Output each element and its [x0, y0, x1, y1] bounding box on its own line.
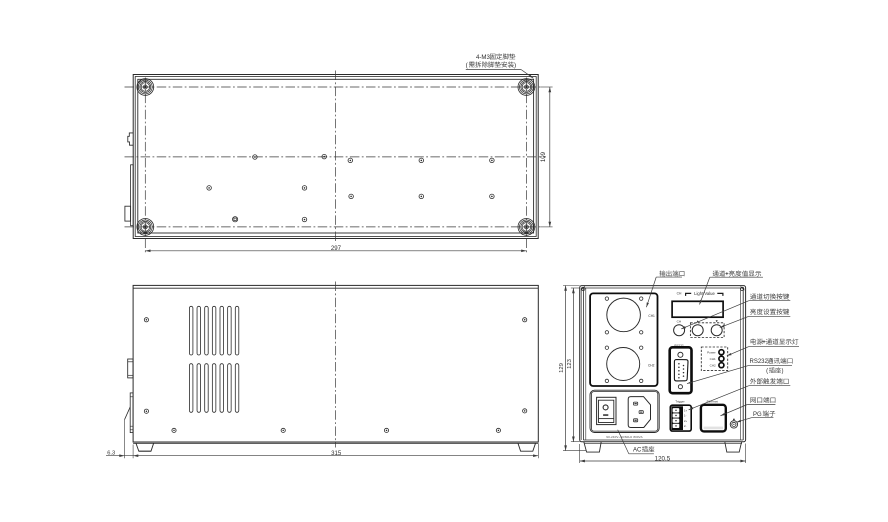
svg-text:AC: AC: [633, 448, 642, 454]
svg-text:CH2: CH2: [710, 363, 716, 367]
svg-text:Light Value: Light Value: [694, 291, 715, 296]
svg-text:PG: PG: [753, 412, 762, 418]
svg-text:120.5: 120.5: [655, 455, 671, 462]
svg-text:CH2: CH2: [648, 363, 655, 367]
svg-text:RS232: RS232: [750, 359, 769, 365]
svg-text:2-: 2-: [684, 424, 686, 428]
svg-text:109: 109: [540, 151, 547, 162]
svg-text:4-M3: 4-M3: [476, 54, 490, 61]
svg-text:): ): [782, 369, 784, 375]
svg-text:297: 297: [331, 245, 342, 252]
svg-text:CH: CH: [677, 292, 682, 296]
svg-text:): ): [514, 62, 516, 69]
svg-text:123: 123: [567, 358, 573, 369]
svg-text:129: 129: [559, 363, 565, 373]
svg-text:(: (: [466, 62, 469, 69]
svg-text:CH1: CH1: [648, 314, 655, 318]
svg-text:CH1: CH1: [710, 357, 716, 361]
svg-text:Power: Power: [707, 350, 716, 354]
svg-text:2+: 2+: [684, 419, 687, 423]
svg-text:1-: 1-: [684, 414, 686, 418]
svg-text:CH: CH: [677, 320, 681, 324]
svg-text:(: (: [766, 369, 768, 375]
svg-text:1+: 1+: [684, 408, 687, 412]
svg-text:6.3: 6.3: [107, 451, 115, 457]
svg-text:315: 315: [331, 450, 342, 457]
svg-text:Trigger: Trigger: [675, 400, 684, 404]
svg-text:90-240V~50/60Hz 800VA: 90-240V~50/60Hz 800VA: [606, 435, 642, 439]
